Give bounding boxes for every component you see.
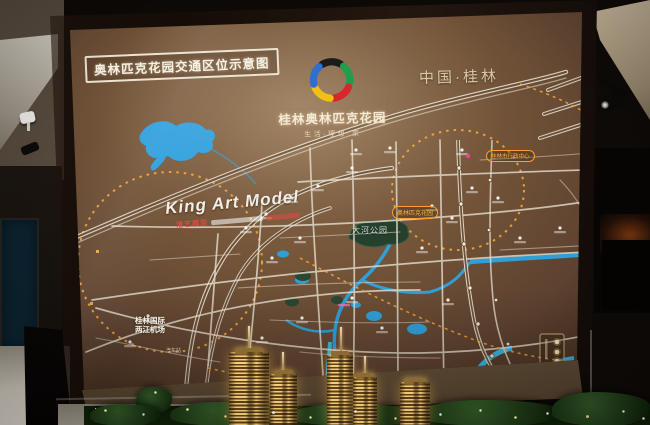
model-tower-2 <box>270 374 297 425</box>
tower-shading <box>229 352 269 425</box>
watermark-blur-bar <box>211 215 263 225</box>
project-name: 桂林奥林匹克花园 <box>247 106 417 129</box>
model-tower-5 <box>400 382 430 425</box>
showroom-photo: 奥林匹克花园交通区位示意图 桂林奥林匹克花园 生活·理想·家 中国·桂林 Kin… <box>0 0 650 425</box>
model-lights <box>95 408 96 409</box>
model-tree-cluster-right <box>552 392 650 425</box>
park-label: 大河公园 <box>352 225 388 236</box>
bus-station-label: 汽车站 <box>166 347 181 354</box>
olympic-garden-logo <box>305 54 358 105</box>
watermark-blur-bar-red <box>266 212 300 220</box>
brand-block: 桂林奥林匹克花园 生活·理想·家 <box>246 53 418 141</box>
model-tower-4 <box>353 377 377 425</box>
legend-box <box>540 334 564 368</box>
tower-shading <box>270 374 297 425</box>
airport-label-line2: 两江机场 <box>128 325 172 334</box>
tower-shading <box>353 377 377 425</box>
city-center-marker-label: 桂林市行政中心 <box>486 150 535 162</box>
project-marker-label: 奥林匹克花园 <box>392 206 438 219</box>
model-bush <box>420 400 560 425</box>
model-tower-1 <box>229 352 269 425</box>
airport-label-line1: 桂林国际 <box>128 316 172 325</box>
tower-shading <box>327 355 353 425</box>
model-tower-3 <box>327 355 353 425</box>
model-bush <box>90 404 160 425</box>
rail-transit-line <box>457 140 520 390</box>
region-text: 中国·桂林 <box>419 65 500 88</box>
rivers-and-lakes <box>139 121 644 400</box>
park-areas <box>285 221 409 307</box>
airport-label: 桂林国际 两江机场 <box>128 316 172 334</box>
tower-shading <box>400 382 430 425</box>
